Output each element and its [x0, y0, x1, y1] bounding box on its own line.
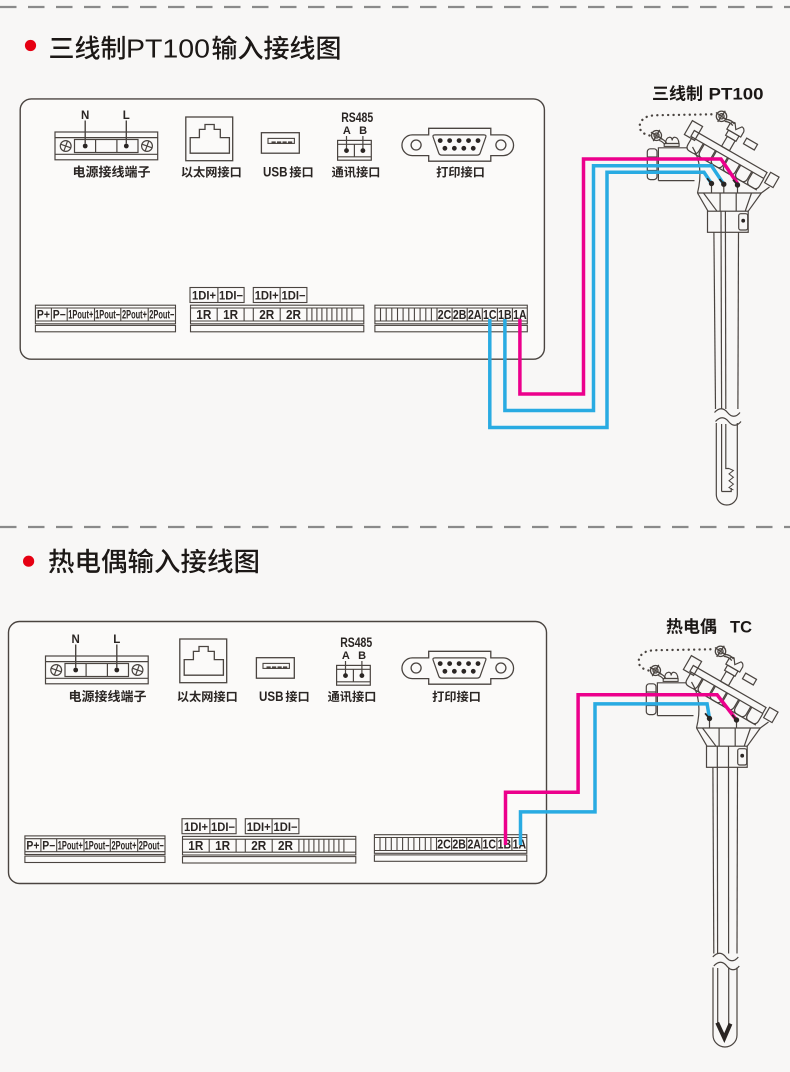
- svg-text:1R: 1R: [196, 307, 212, 322]
- svg-text:1C: 1C: [483, 837, 497, 852]
- svg-text:N: N: [72, 634, 80, 646]
- svg-text:2Pout−: 2Pout−: [139, 840, 164, 852]
- svg-text:2A: 2A: [467, 837, 481, 852]
- svg-text:2R: 2R: [278, 838, 294, 853]
- svg-text:L: L: [123, 110, 130, 122]
- svg-text:1DI+: 1DI+: [247, 822, 271, 834]
- svg-text:B: B: [358, 650, 366, 662]
- svg-text:1R: 1R: [223, 307, 239, 322]
- svg-text:1Pout+: 1Pout+: [68, 310, 93, 322]
- svg-text:2Pout+: 2Pout+: [112, 840, 137, 852]
- svg-text:1DI−: 1DI−: [282, 291, 306, 303]
- svg-text:RS485: RS485: [341, 110, 373, 125]
- svg-text:1R: 1R: [215, 838, 231, 853]
- svg-text:PT100: PT100: [126, 34, 210, 64]
- svg-text:1DI−: 1DI−: [219, 291, 243, 303]
- svg-text:2Pout−: 2Pout−: [149, 310, 174, 322]
- svg-text:TC: TC: [730, 618, 752, 637]
- svg-text:2B: 2B: [452, 837, 466, 852]
- svg-text:2R: 2R: [286, 307, 302, 322]
- svg-text:2B: 2B: [453, 307, 467, 322]
- svg-text:P−: P−: [53, 310, 66, 322]
- svg-text:2C: 2C: [438, 307, 452, 322]
- svg-text:2R: 2R: [251, 838, 267, 853]
- svg-text:1DI−: 1DI−: [211, 822, 235, 834]
- svg-text:1DI+: 1DI+: [255, 291, 279, 303]
- svg-text:USB: USB: [259, 688, 284, 704]
- svg-text:PT100: PT100: [709, 85, 764, 104]
- svg-text:A: A: [343, 125, 351, 137]
- svg-text:1DI+: 1DI+: [184, 822, 208, 834]
- svg-text:1Pout−: 1Pout−: [95, 310, 120, 322]
- svg-text:1DI−: 1DI−: [274, 822, 298, 834]
- svg-text:1Pout−: 1Pout−: [85, 840, 110, 852]
- svg-text:A: A: [342, 650, 350, 662]
- svg-text:B: B: [359, 125, 367, 137]
- svg-text:USB: USB: [263, 164, 288, 180]
- svg-text:2Pout+: 2Pout+: [122, 310, 147, 322]
- svg-text:1R: 1R: [188, 838, 204, 853]
- svg-text:L: L: [113, 634, 120, 646]
- svg-text:P+: P+: [26, 840, 39, 852]
- svg-text:P+: P+: [37, 310, 50, 322]
- svg-text:2C: 2C: [437, 837, 451, 852]
- svg-text:N: N: [81, 110, 89, 122]
- svg-text:1DI+: 1DI+: [192, 291, 216, 303]
- svg-text:1Pout+: 1Pout+: [58, 840, 83, 852]
- svg-text:RS485: RS485: [340, 635, 372, 650]
- svg-text:2R: 2R: [259, 307, 275, 322]
- svg-text:P−: P−: [42, 840, 55, 852]
- svg-text:2A: 2A: [468, 307, 482, 322]
